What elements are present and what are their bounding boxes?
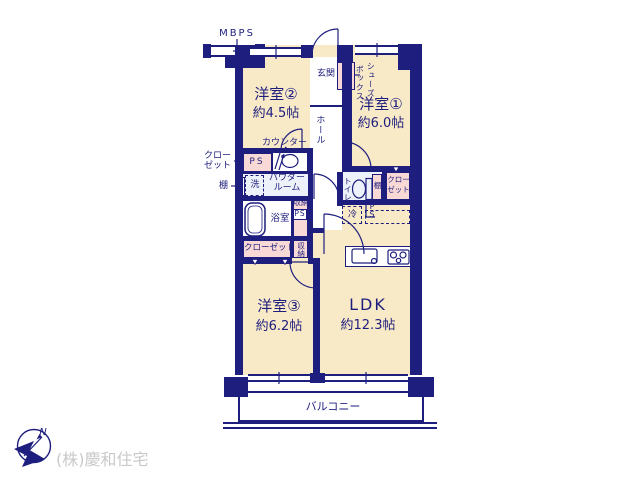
vent-mark: [393, 167, 399, 172]
room1-size: 約6.0帖: [350, 117, 412, 132]
room3-name: 洋室③: [243, 298, 315, 315]
shelf-left-label: 棚: [216, 181, 231, 191]
room1-door-arc: [344, 142, 371, 169]
compass-bird-icon: [14, 441, 45, 467]
washer-label: 洗: [249, 180, 261, 190]
bath-label: 浴室: [265, 214, 295, 225]
room2-name: 洋室②: [240, 86, 312, 103]
closet-bottom-label: クローゼット: [244, 244, 290, 254]
entrance-label: 玄関: [311, 69, 341, 79]
mbps-label: MBPS: [214, 28, 260, 40]
company-name: (株)慶和住宅: [56, 451, 188, 469]
room1-name: 洋室①: [350, 96, 412, 113]
storage-bottom-label: 収納: [296, 241, 305, 258]
ps-mid-label: PS: [293, 210, 307, 219]
counter-label: カウンター: [262, 138, 304, 148]
balcony-label: バルコニー: [300, 401, 366, 414]
fridge-label: 冷: [347, 210, 358, 220]
ps-top-label: PS: [247, 157, 267, 167]
closet-left-label-line2: ゼット: [202, 161, 233, 171]
floorplan-canvas: MBPS 玄関 ホール シューズ ボックス 洋室② 約4.5帖 洋室① 約6.0…: [0, 0, 640, 480]
closet-right-label-line2: ゼット: [387, 186, 410, 195]
room3-size: 約6.2帖: [243, 320, 315, 335]
powder-room-label-line2: ルーム: [264, 183, 310, 193]
closet-right-label-line1: クロー: [387, 176, 410, 185]
ldk-size: 約12.3帖: [326, 319, 410, 334]
room2-size: 約4.5帖: [240, 107, 312, 122]
storage-mid-label: 収納: [293, 199, 309, 208]
ldk-name: LDK: [330, 296, 406, 314]
powder-room-label-line1: パウダー: [264, 173, 310, 183]
toilet-shelf-label: 棚: [373, 182, 382, 191]
toilet-label: トイレ: [343, 175, 352, 202]
vent-mark: [282, 260, 288, 265]
closet-left-label-line1: クロー: [202, 151, 233, 161]
room3-door-arc: [290, 262, 316, 288]
powder-door-arc: [314, 174, 339, 199]
entrance-door-arc: [312, 29, 338, 55]
ps-right-label: PS: [368, 203, 376, 219]
toilet-bowl-icon: [353, 180, 366, 198]
compass-north-label: N: [37, 427, 49, 439]
vent-mark: [252, 260, 258, 265]
toilet-tank-icon: [366, 179, 372, 200]
hall-label: ホール: [314, 107, 324, 153]
ldk-door-arc: [324, 214, 364, 254]
